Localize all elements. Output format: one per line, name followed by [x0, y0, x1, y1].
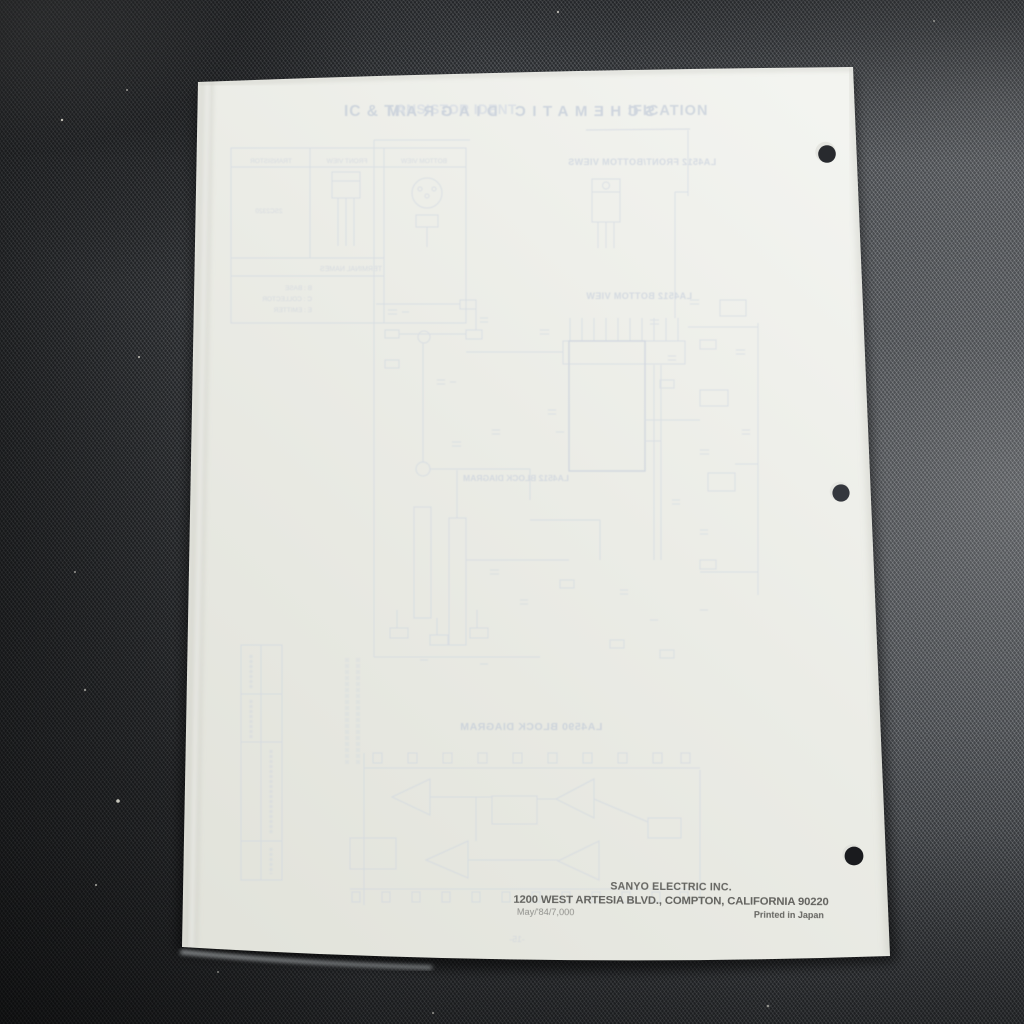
svg-text:Printed in Japan: Printed in Japan	[754, 910, 824, 921]
svg-text:FRONT VIEW: FRONT VIEW	[326, 158, 368, 165]
svg-text:LA4590 BLOCK DIAGRAM: LA4590 BLOCK DIAGRAM	[460, 721, 603, 733]
svg-text:SANYO ELECTRIC INC.: SANYO ELECTRIC INC.	[610, 881, 732, 894]
svg-text:C : COLLECTOR: C : COLLECTOR	[262, 296, 312, 303]
svg-text:May/'84/7,000: May/'84/7,000	[517, 907, 575, 917]
svg-text:B : BASE: B : BASE	[284, 285, 312, 292]
svg-text:-15-: -15-	[509, 934, 524, 944]
svg-text:IFICATION: IFICATION	[628, 103, 708, 119]
svg-text:SCHEMATIC DIAGRAM: SCHEMATIC DIAGRAM	[381, 103, 655, 120]
svg-text:2SC2320: 2SC2320	[255, 208, 282, 215]
svg-text:LA4512 FRONT/BOTTOM VIEWS: LA4512 FRONT/BOTTOM VIEWS	[568, 157, 716, 167]
svg-text:E : EMITTER: E : EMITTER	[273, 307, 312, 314]
svg-text:LA4512 BLOCK DIAGRAM: LA4512 BLOCK DIAGRAM	[463, 473, 569, 483]
svg-text:TRANSISTOR: TRANSISTOR	[250, 158, 292, 165]
svg-text:LA4512 BOTTOM VIEW: LA4512 BOTTOM VIEW	[586, 291, 692, 301]
svg-text:TERMINAL NAMES: TERMINAL NAMES	[320, 266, 382, 273]
svg-text:BOTTOM VIEW: BOTTOM VIEW	[400, 158, 447, 165]
svg-text:1200 WEST ARTESIA BLVD., COMPT: 1200 WEST ARTESIA BLVD., COMPTON, CALIFO…	[513, 894, 828, 908]
